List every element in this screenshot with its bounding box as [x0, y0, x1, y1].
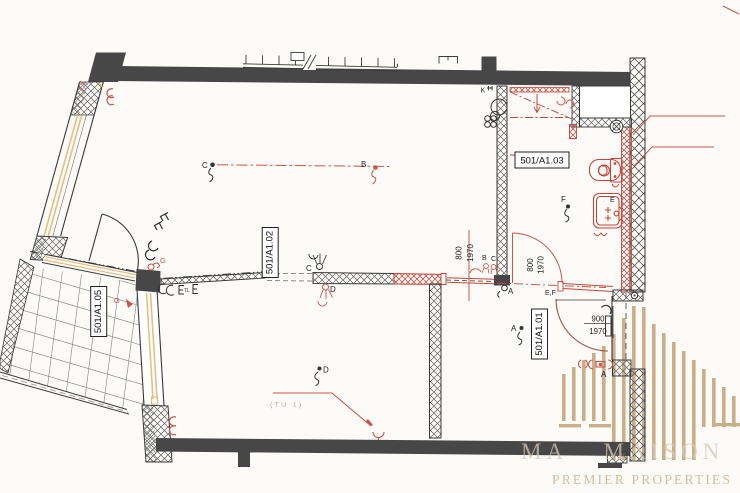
svg-text:B: B: [361, 160, 366, 169]
svg-text:C: C: [202, 161, 208, 170]
svg-text:G: G: [114, 296, 120, 305]
svg-text:800: 800: [526, 258, 535, 272]
svg-text:K: K: [481, 88, 486, 95]
svg-text:MA MAISON: MA MAISON: [521, 439, 724, 464]
svg-text:F: F: [561, 195, 566, 204]
svg-text:A: A: [511, 324, 517, 333]
svg-text:800: 800: [455, 246, 464, 260]
svg-text:TL: TL: [184, 288, 190, 294]
svg-text:A: A: [601, 370, 607, 379]
svg-text:E,F: E,F: [545, 290, 556, 297]
svg-text:E: E: [610, 197, 615, 204]
svg-text:C: C: [306, 264, 312, 273]
svg-text:1970: 1970: [589, 327, 607, 336]
svg-text:501/A1.01: 501/A1.01: [534, 312, 545, 355]
svg-text:B: B: [482, 255, 487, 262]
svg-text:(TU 1): (TU 1): [270, 400, 303, 409]
svg-text:900: 900: [591, 315, 605, 324]
svg-text:D: D: [323, 366, 329, 375]
svg-text:1970: 1970: [537, 256, 546, 274]
svg-text:A: A: [508, 287, 514, 296]
svg-text:C: C: [491, 256, 496, 263]
svg-text:1970: 1970: [466, 244, 475, 262]
svg-text:G: G: [160, 256, 166, 265]
svg-text:PREMIER PROPERTIES: PREMIER PROPERTIES: [552, 472, 732, 487]
svg-text:501/A1.05: 501/A1.05: [93, 290, 104, 333]
svg-text:D: D: [330, 285, 336, 294]
svg-text:501/A1.02: 501/A1.02: [265, 231, 276, 274]
svg-text:501/A1.03: 501/A1.03: [520, 156, 563, 167]
